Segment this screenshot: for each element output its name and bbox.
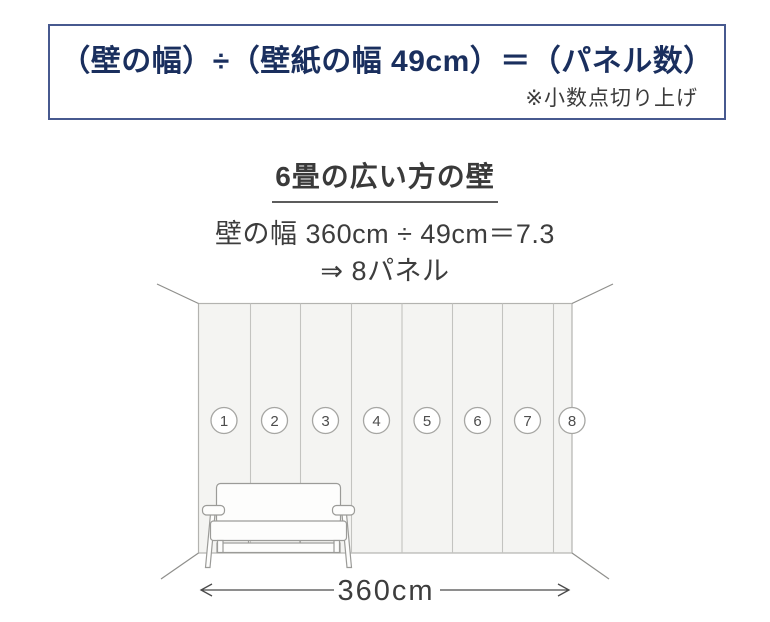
panel-badge-number: 6 xyxy=(473,413,481,430)
wall-width-label: 360cm xyxy=(337,575,434,607)
panel-badge-6: 6 xyxy=(465,408,491,434)
sofa-right-armrest xyxy=(333,506,355,516)
panel-badge-1: 1 xyxy=(211,408,237,434)
panel-badge-number: 1 xyxy=(220,413,228,430)
wall-diagram: 1 2 3 4 5 6 7 8 xyxy=(0,0,770,622)
sofa-backrest xyxy=(217,484,341,524)
floor-corner-left-line xyxy=(161,553,199,579)
ceiling-corner-left-line xyxy=(157,284,199,304)
panel-badge-2: 2 xyxy=(262,408,288,434)
sofa-left-post xyxy=(218,541,224,553)
floor-corner-right-line xyxy=(572,553,609,579)
panel-badge-7: 7 xyxy=(515,408,541,434)
sofa-right-post xyxy=(334,541,340,553)
sofa-illustration xyxy=(203,484,355,568)
panel-badge-8: 8 xyxy=(559,408,585,434)
panel-badge-number: 7 xyxy=(523,413,531,430)
panel-badge-number: 5 xyxy=(423,413,431,430)
panel-badge-number: 8 xyxy=(568,413,576,430)
panel-badge-3: 3 xyxy=(313,408,339,434)
panel-badge-number: 2 xyxy=(270,413,278,430)
panel-badge-number: 3 xyxy=(321,413,329,430)
sofa-frame-rail xyxy=(217,543,340,553)
width-dimension: 360cm xyxy=(201,575,569,607)
panel-badge-4: 4 xyxy=(364,408,390,434)
ceiling-corner-right-line xyxy=(572,284,613,304)
panel-badge-5: 5 xyxy=(414,408,440,434)
sofa-left-armrest xyxy=(203,506,225,516)
sofa-seat-cushion xyxy=(211,521,347,541)
panel-badge-number: 4 xyxy=(372,413,380,430)
